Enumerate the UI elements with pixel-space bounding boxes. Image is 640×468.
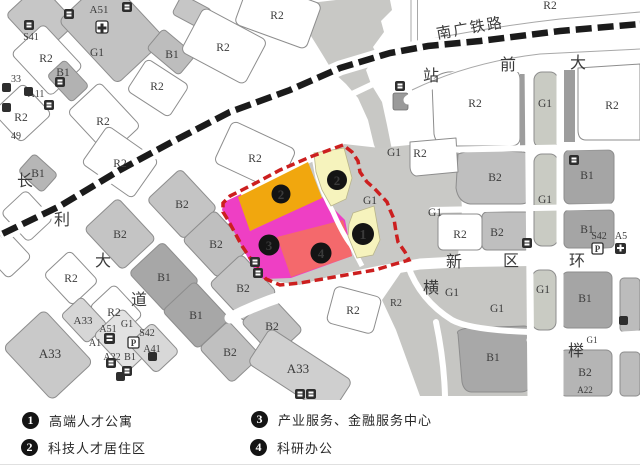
svg-text:前: 前	[500, 56, 516, 74]
svg-text:R2: R2	[113, 158, 127, 170]
svg-text:R2: R2	[216, 42, 230, 54]
svg-text:3: 3	[266, 238, 273, 253]
svg-text:R2: R2	[64, 273, 78, 285]
svg-text:R2: R2	[605, 100, 619, 112]
svg-text:R2: R2	[107, 307, 121, 319]
svg-text:B1: B1	[157, 272, 171, 284]
svg-text:B1: B1	[578, 293, 592, 305]
svg-text:B2: B2	[113, 229, 127, 241]
svg-text:G1: G1	[387, 147, 401, 159]
svg-text:环: 环	[569, 253, 585, 270]
svg-text:B1: B1	[486, 352, 500, 364]
svg-text:4: 4	[318, 246, 325, 261]
svg-text:A22: A22	[577, 385, 593, 395]
svg-text:49: 49	[11, 131, 21, 142]
svg-text:P: P	[595, 244, 601, 254]
svg-text:S42: S42	[591, 231, 607, 242]
svg-text:横: 横	[423, 279, 439, 297]
svg-text:区: 区	[503, 253, 519, 270]
svg-text:B2: B2	[223, 347, 237, 359]
svg-text:R2: R2	[39, 53, 53, 65]
svg-text:A33: A33	[74, 315, 93, 327]
svg-text:B1: B1	[165, 49, 179, 61]
svg-text:A33: A33	[287, 361, 309, 376]
svg-text:站: 站	[423, 67, 439, 85]
svg-text:R2: R2	[270, 10, 284, 22]
svg-text:B1: B1	[580, 170, 594, 182]
svg-text:2: 2	[334, 173, 341, 188]
svg-text:S42: S42	[139, 328, 155, 339]
svg-text:B2: B2	[175, 199, 189, 211]
svg-text:R2: R2	[150, 81, 164, 93]
svg-text:大: 大	[95, 252, 111, 270]
svg-text:1: 1	[360, 228, 367, 243]
svg-text:A1: A1	[89, 338, 101, 349]
svg-text:B2: B2	[236, 283, 250, 295]
svg-text:R2: R2	[468, 98, 482, 110]
svg-text:A51: A51	[90, 4, 109, 16]
svg-text:G1: G1	[90, 47, 104, 59]
svg-text:G1: G1	[538, 194, 552, 206]
svg-text:A5: A5	[615, 231, 627, 242]
svg-text:榉: 榉	[568, 342, 584, 360]
svg-text:A33: A33	[39, 346, 61, 361]
svg-text:R2: R2	[96, 116, 110, 128]
svg-text:大: 大	[570, 54, 586, 72]
svg-text:G1: G1	[490, 303, 504, 315]
svg-text:33: 33	[11, 74, 21, 85]
svg-text:长: 长	[17, 172, 33, 190]
svg-text:B2: B2	[490, 227, 504, 239]
svg-text:B2: B2	[209, 239, 223, 251]
svg-text:B1: B1	[124, 352, 136, 363]
svg-text:B1: B1	[189, 310, 203, 322]
svg-text:R2: R2	[413, 148, 427, 160]
svg-text:B2: B2	[265, 321, 279, 333]
svg-text:B1: B1	[31, 168, 45, 180]
svg-text:R2: R2	[453, 229, 467, 241]
svg-text:R2: R2	[390, 298, 402, 309]
svg-text:G1: G1	[428, 207, 442, 219]
svg-text:G1: G1	[538, 98, 552, 110]
svg-text:G1: G1	[121, 319, 133, 330]
svg-text:利: 利	[54, 211, 70, 229]
svg-text:S41: S41	[23, 32, 39, 43]
svg-text:新: 新	[446, 253, 462, 271]
svg-text:G1: G1	[587, 335, 598, 345]
svg-text:R2: R2	[248, 153, 262, 165]
svg-text:R2: R2	[543, 0, 557, 12]
svg-text:2: 2	[278, 187, 285, 202]
svg-text:R2: R2	[14, 112, 28, 124]
svg-text:G1: G1	[445, 287, 459, 299]
svg-text:G1: G1	[363, 195, 377, 207]
svg-text:R2: R2	[346, 305, 360, 317]
svg-text:B2: B2	[488, 172, 502, 184]
svg-text:G1: G1	[536, 284, 550, 296]
svg-text:道: 道	[131, 291, 147, 309]
svg-text:P: P	[131, 338, 137, 348]
svg-text:B2: B2	[578, 367, 592, 379]
